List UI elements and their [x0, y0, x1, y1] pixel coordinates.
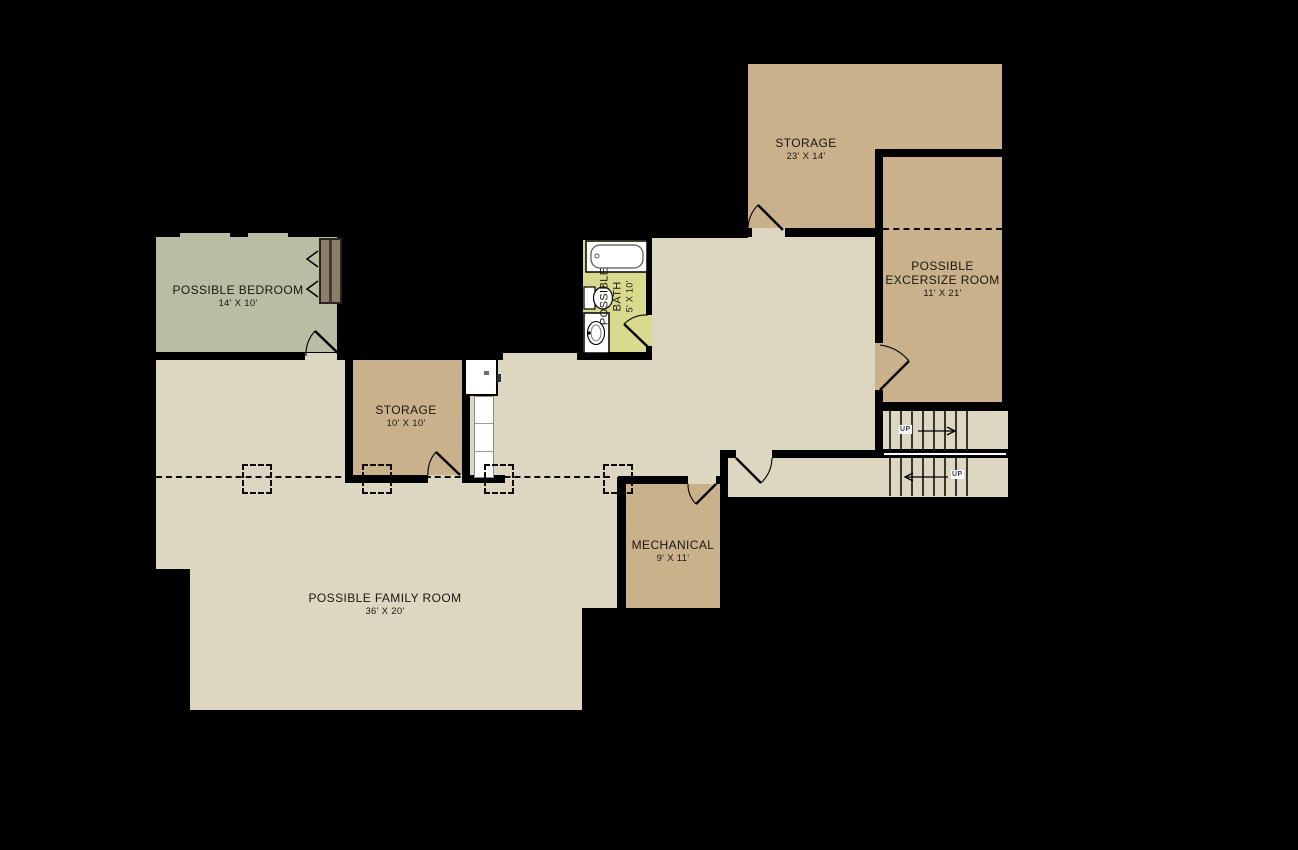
- column-symbol: [242, 464, 272, 494]
- wall: [772, 450, 882, 458]
- open-area-floor-mid: [617, 450, 728, 477]
- wall: [1002, 149, 1010, 402]
- wall: [582, 608, 626, 616]
- wall: [646, 232, 652, 315]
- wall: [740, 56, 1010, 64]
- water-heater: [464, 358, 498, 396]
- wall: [577, 230, 748, 238]
- shelf-line: [475, 423, 493, 424]
- bedroom-window: [248, 233, 288, 237]
- wall: [728, 450, 736, 458]
- storage-large-door-threshold: [748, 228, 785, 237]
- wall: [716, 476, 720, 484]
- wall: [875, 149, 1010, 157]
- wall: [875, 402, 1010, 411]
- column-symbol: [603, 464, 633, 494]
- column-symbol: [484, 464, 514, 494]
- wall: [618, 476, 626, 616]
- bath-door-threshold: [646, 315, 652, 346]
- stairs-up-label-lower: UP: [951, 470, 964, 479]
- column-center-dot: [373, 475, 377, 479]
- wall: [618, 608, 728, 616]
- wall: [148, 229, 345, 237]
- bedroom-floor: [156, 237, 337, 352]
- shelf-line: [475, 451, 493, 452]
- wall: [785, 228, 883, 237]
- wall: [182, 569, 190, 718]
- wall: [577, 232, 583, 360]
- wall: [182, 710, 590, 718]
- water-heater-label-speck: [484, 371, 489, 375]
- wall: [720, 450, 728, 616]
- bath-floor: [583, 240, 646, 352]
- closet-door-divider: [329, 240, 332, 302]
- wall: [148, 352, 156, 577]
- wall: [148, 352, 305, 360]
- exercise-partition-line: [883, 228, 1002, 230]
- family-room-floor-lower: [182, 577, 582, 713]
- wall: [582, 608, 590, 718]
- wall: [720, 497, 1010, 505]
- wall: [148, 229, 156, 360]
- wall: [875, 390, 883, 458]
- bedroom-window: [180, 233, 230, 237]
- open-area-floor-right: [652, 237, 875, 450]
- wall: [1002, 56, 1010, 157]
- wall: [875, 149, 883, 340]
- column-symbol: [362, 464, 392, 494]
- wall: [740, 56, 748, 237]
- stair-landing-line: [884, 453, 1006, 455]
- wall: [577, 352, 652, 360]
- exercise-room-floor: [883, 157, 1002, 402]
- floor-plan: STORAGE 23' X 14' POSSIBLE EXCERSIZE ROO…: [0, 0, 1298, 850]
- wall: [748, 228, 752, 237]
- hall-door-threshold: [736, 450, 772, 458]
- wall: [345, 352, 353, 483]
- mechanical-floor: [626, 484, 720, 608]
- water-heater-handle: [497, 374, 501, 382]
- family-room-floor-notch: [582, 577, 617, 608]
- exercise-door-threshold: [875, 343, 883, 390]
- stairs-up-label-upper: UP: [899, 425, 912, 434]
- hallway-floor: [728, 458, 1008, 497]
- mechanical-door-threshold: [688, 476, 716, 484]
- storage-small-floor: [353, 360, 462, 475]
